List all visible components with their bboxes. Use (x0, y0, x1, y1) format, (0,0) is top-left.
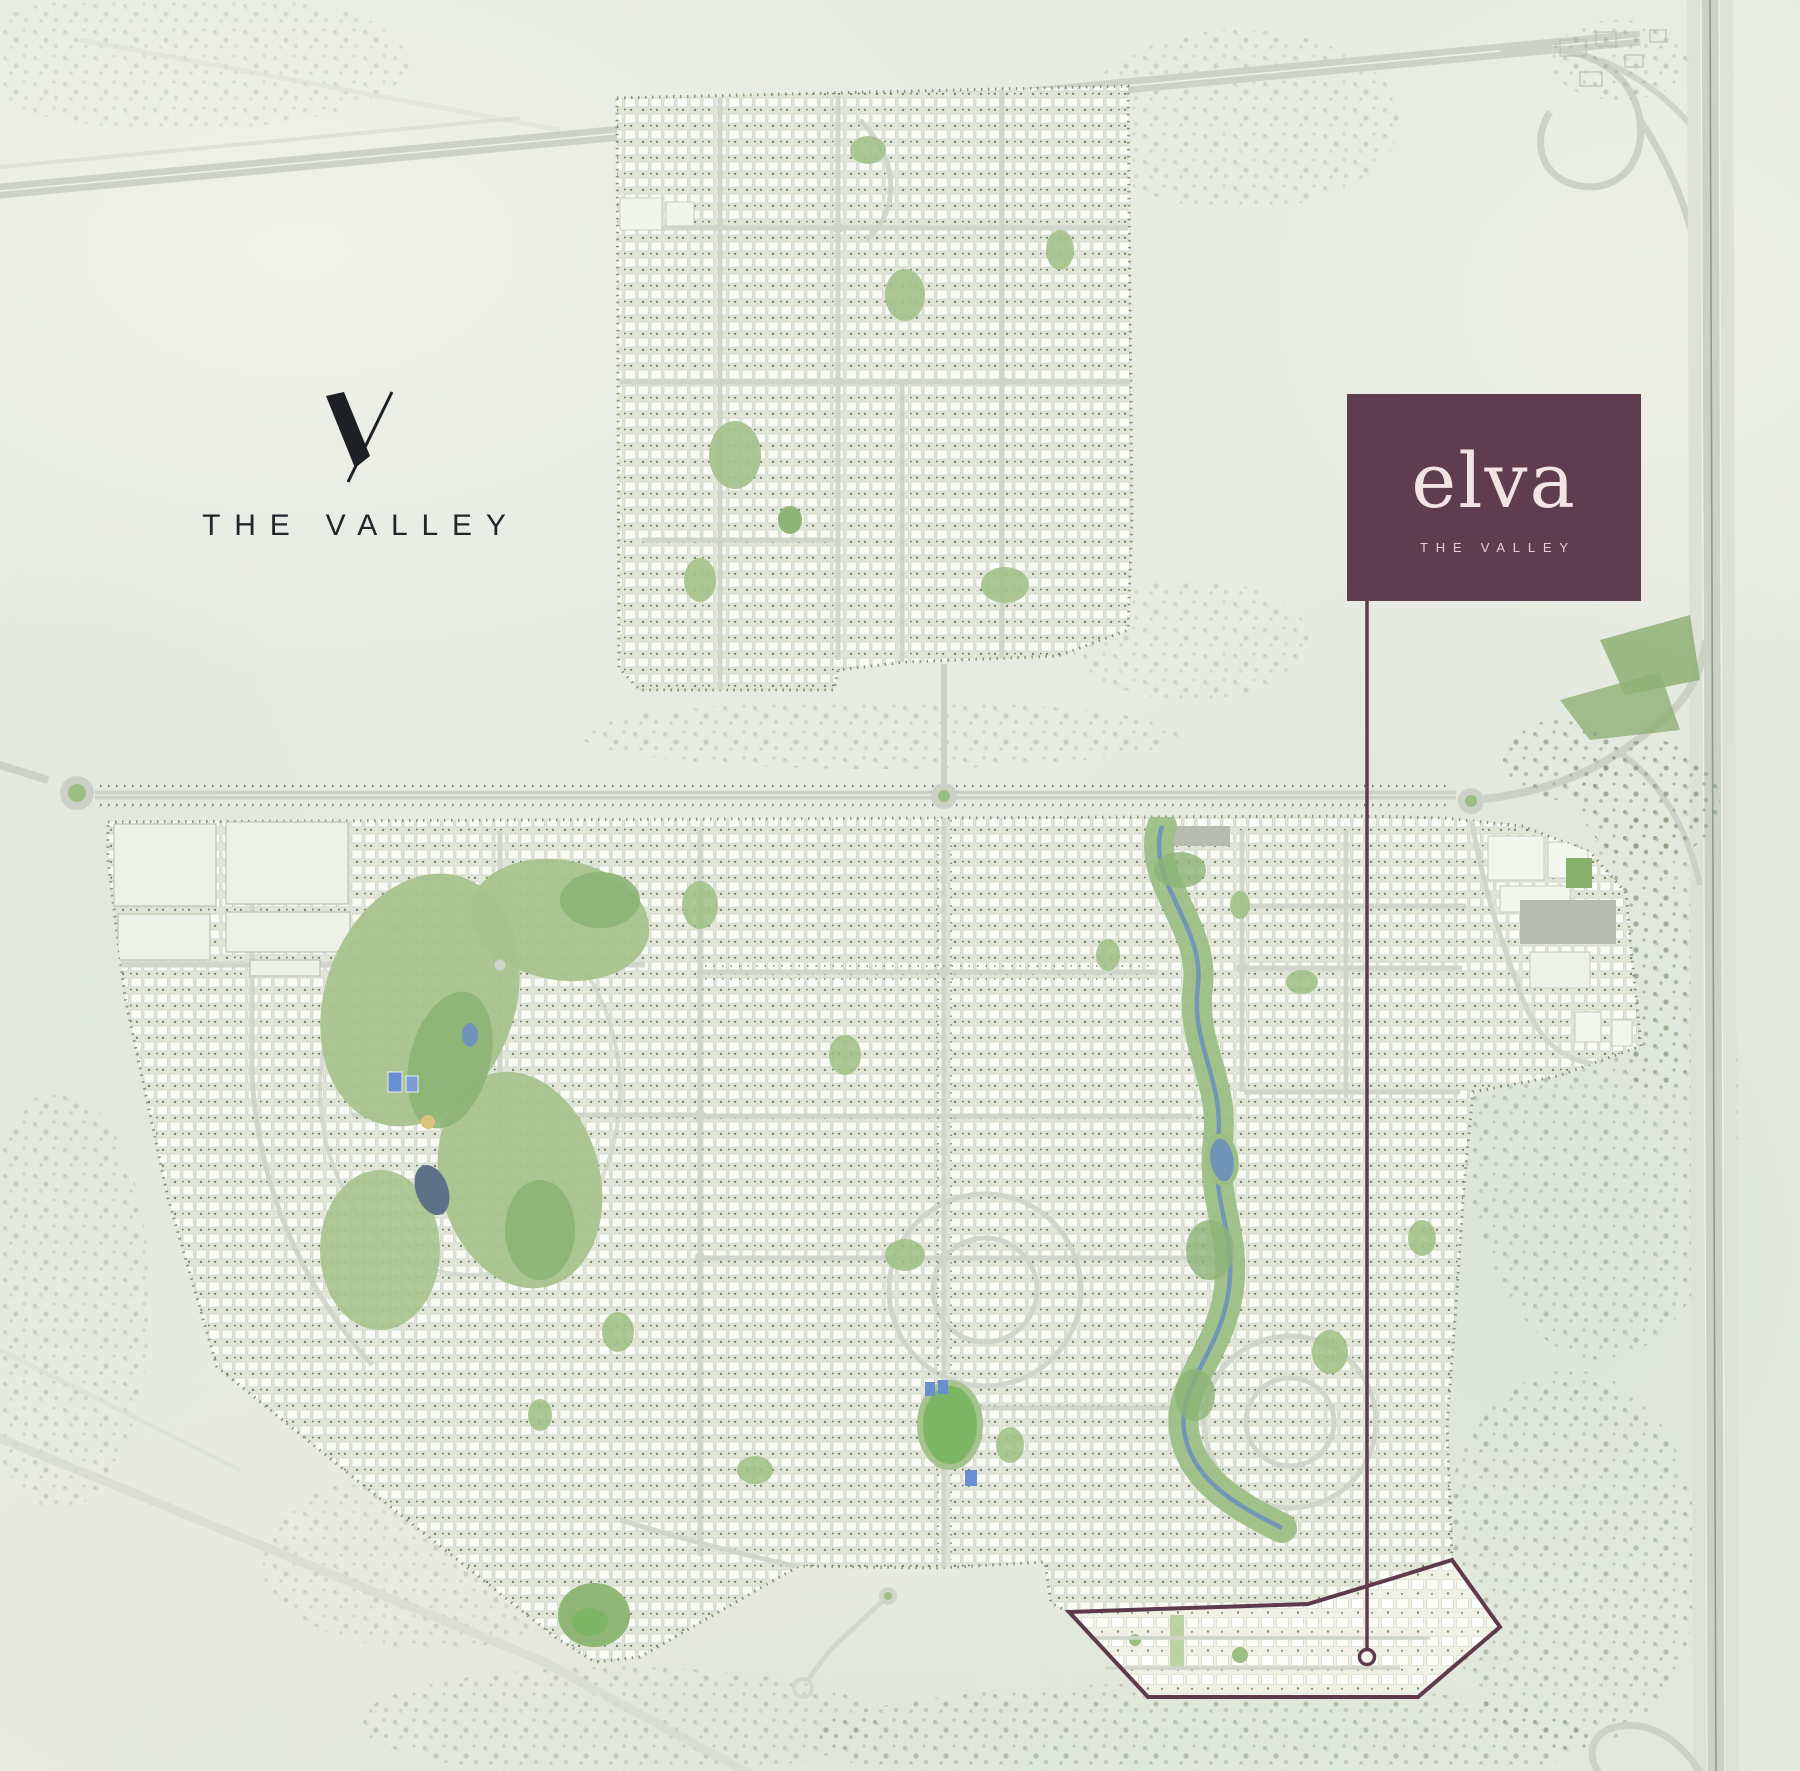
valley-logo-text: THE VALLEY (158, 509, 550, 543)
village-buildings (1550, 20, 1690, 100)
valley-logo: THE VALLEY (158, 390, 550, 543)
elva-badge-title: elva (1411, 443, 1577, 519)
parcel-marker-icon (1360, 1650, 1375, 1665)
south-tip-park (558, 1583, 630, 1647)
masterplan-page: THE VALLEY elva THE VALLEY (0, 0, 1800, 1771)
valley-v-slash-icon (310, 390, 398, 484)
master-plan-map (0, 0, 1800, 1771)
elva-badge: elva THE VALLEY (1347, 394, 1641, 601)
north-district (617, 86, 1132, 690)
elva-badge-subtitle: THE VALLEY (1412, 540, 1576, 555)
